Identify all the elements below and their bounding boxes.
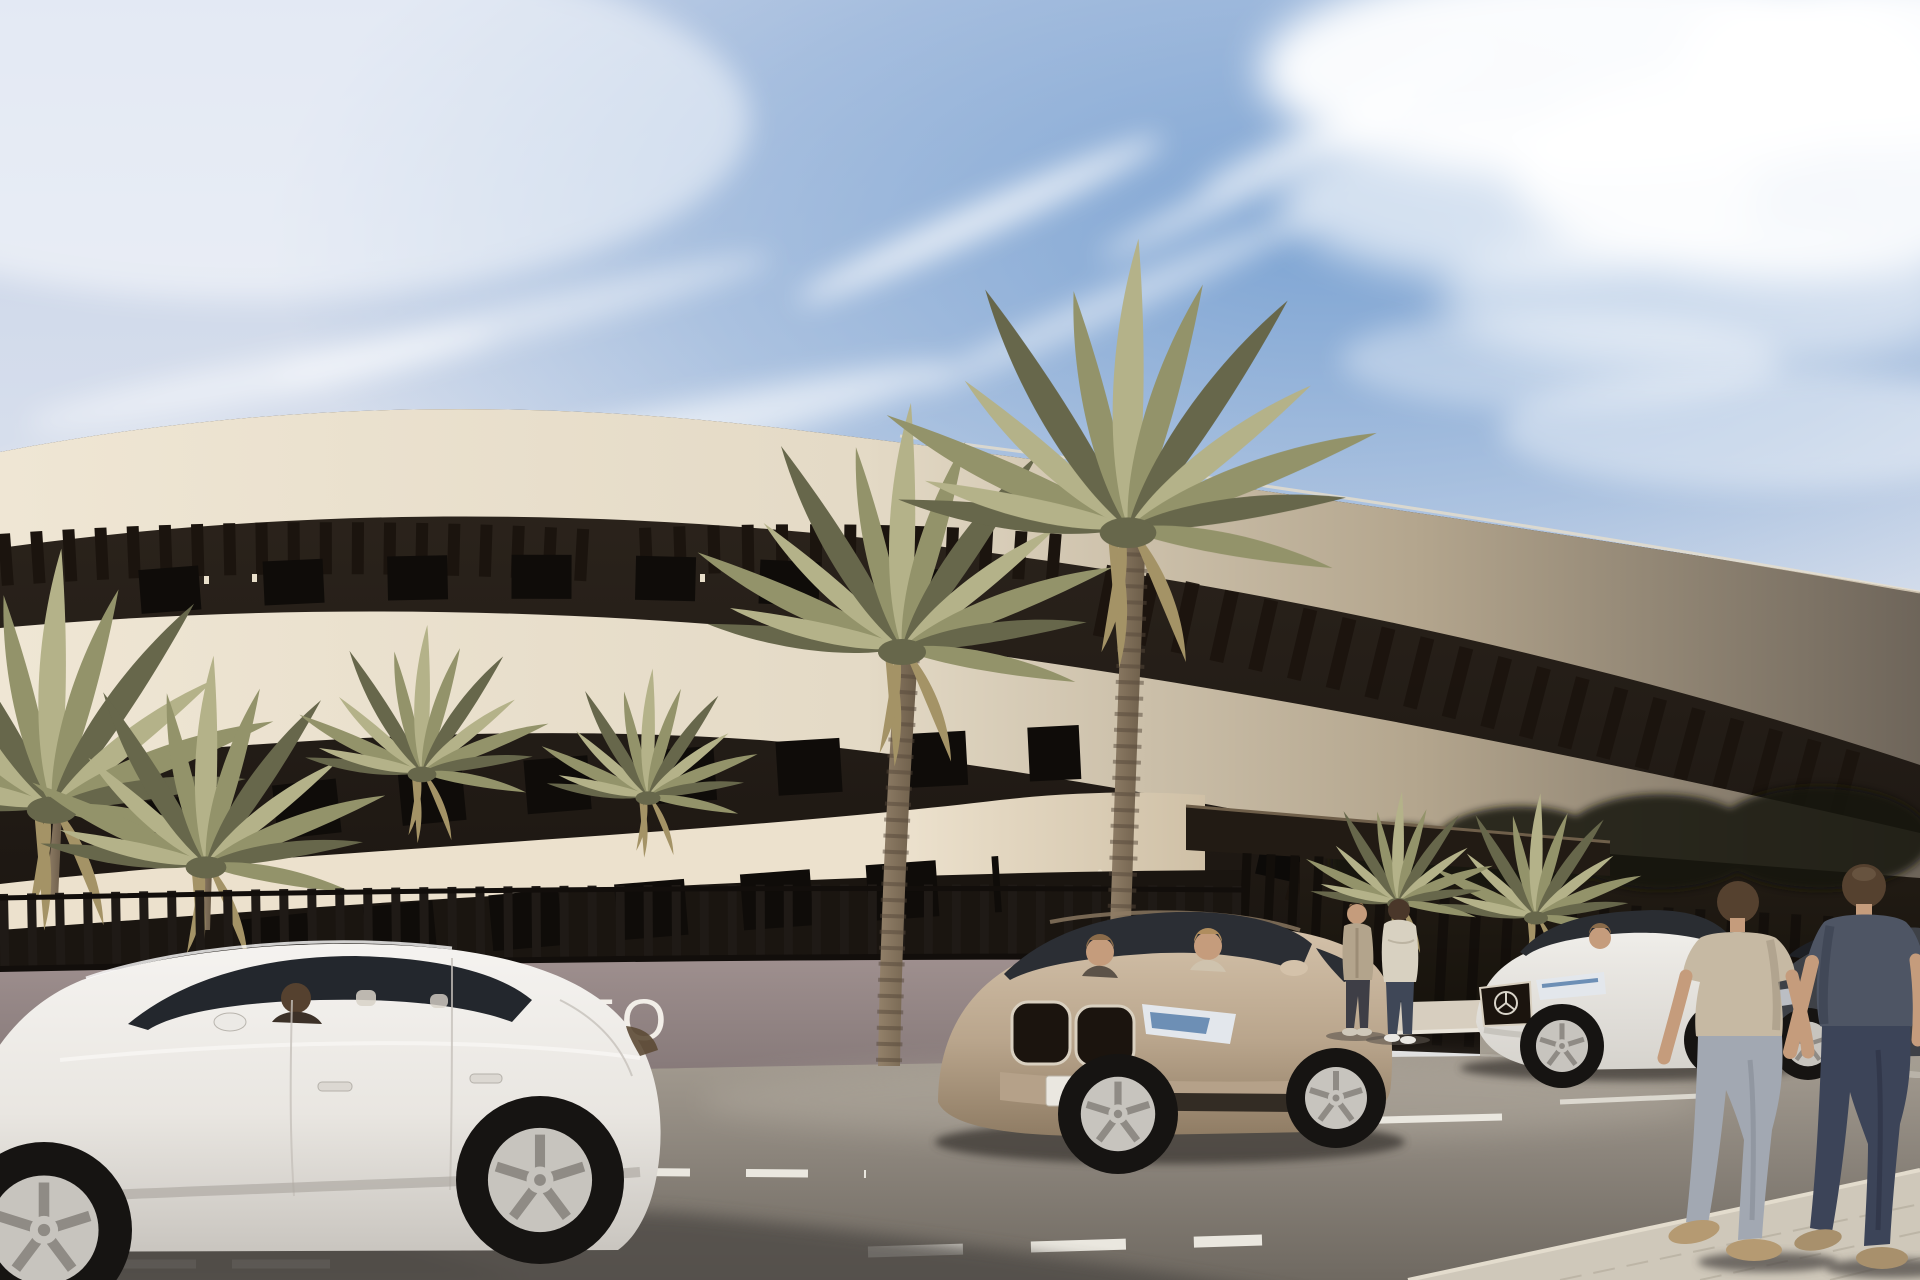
- balding-crown: [1852, 867, 1876, 881]
- architectural-render: TO: [0, 0, 1920, 1280]
- wheel: [1058, 1054, 1178, 1174]
- shoe: [1342, 1028, 1358, 1036]
- door-handle: [470, 1074, 502, 1083]
- head: [1717, 881, 1759, 923]
- side-mirror: [1280, 960, 1308, 976]
- shoe: [1400, 1036, 1416, 1044]
- shoe: [1856, 1247, 1908, 1269]
- headrest: [430, 994, 448, 1008]
- wheel: [456, 1096, 624, 1264]
- shoe: [1726, 1239, 1782, 1261]
- arm: [1916, 960, 1919, 1040]
- wheel: [1520, 1004, 1604, 1088]
- mercedes-driver: [1589, 923, 1611, 949]
- jeans-crease: [1878, 1050, 1880, 1230]
- wheel: [1286, 1048, 1386, 1148]
- shoe: [1384, 1034, 1400, 1042]
- neck: [1730, 918, 1745, 932]
- shoe: [1356, 1028, 1372, 1036]
- headrest: [356, 990, 376, 1006]
- suv-grille: [1012, 1002, 1070, 1064]
- side-mirror: [214, 1013, 246, 1031]
- door-handle: [318, 1082, 352, 1091]
